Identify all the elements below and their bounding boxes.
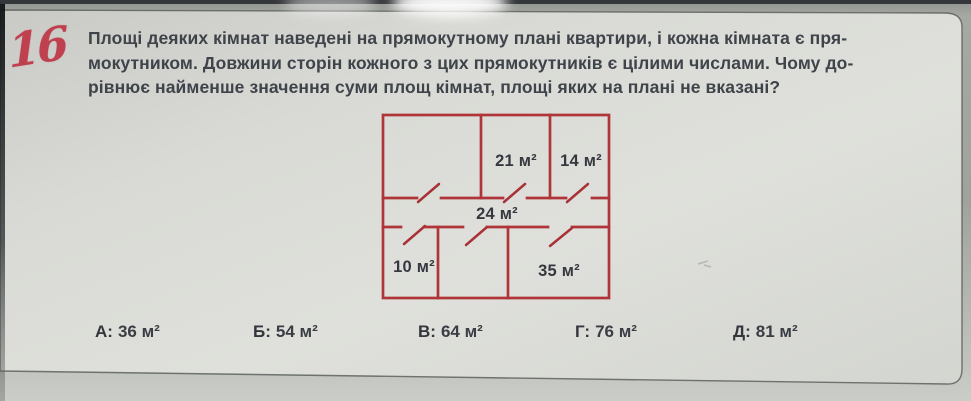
door-mark-room-35	[550, 228, 572, 246]
answer-option-d: Д:81 м²	[733, 322, 798, 342]
room-area-24: 24 м²	[476, 205, 518, 223]
problem-number: 16	[7, 19, 67, 74]
answer-option-g-label: Г:	[575, 322, 590, 341]
room-area-14: 14 м²	[560, 152, 602, 170]
room-area-35: 35 м²	[538, 262, 580, 280]
door-mark-room-10	[404, 226, 425, 244]
answer-option-v: В:64 м²	[418, 322, 483, 342]
room-area-21: 21 м²	[495, 152, 537, 170]
plan-room-area-labels: 21 м² 14 м² 24 м² 10 м² 35 м²	[393, 152, 602, 280]
answer-option-a: А:36 м²	[95, 322, 160, 342]
answer-option-b-label: Б:	[253, 322, 271, 341]
answer-option-d-value: 81 м²	[756, 322, 798, 341]
answer-option-b: Б:54 м²	[253, 322, 318, 342]
problem-text-line-2: мокутником. Довжини сторін кожного з цих…	[88, 51, 853, 76]
test-page: 16 Площі деяких кімнат наведені на прямо…	[0, 0, 971, 401]
answer-option-v-label: В:	[418, 322, 436, 341]
problem-text-line-1: Площі деяких кімнат наведені на прямокут…	[88, 26, 853, 51]
floor-plan-diagram: 21 м² 14 м² 24 м² 10 м² 35 м²	[375, 104, 620, 304]
answer-option-b-value: 54 м²	[276, 322, 318, 341]
answer-option-a-value: 36 м²	[118, 322, 160, 341]
problem-text-line-3: рівнює найменше значення суми площ кімна…	[88, 75, 853, 100]
answer-option-d-label: Д:	[733, 322, 751, 341]
door-mark-top-left-room	[418, 184, 439, 202]
door-mark-room-14	[567, 184, 588, 202]
answer-option-v-value: 64 м²	[441, 322, 483, 341]
answer-option-g: Г:76 м²	[575, 322, 637, 342]
door-mark-bottom-middle-room	[466, 227, 487, 245]
answer-option-g-value: 76 м²	[595, 322, 637, 341]
room-area-10: 10 м²	[393, 258, 435, 276]
door-mark-room-21	[504, 184, 525, 202]
problem-text: Площі деяких кімнат наведені на прямокут…	[88, 26, 853, 100]
answer-option-a-label: А:	[95, 322, 113, 341]
